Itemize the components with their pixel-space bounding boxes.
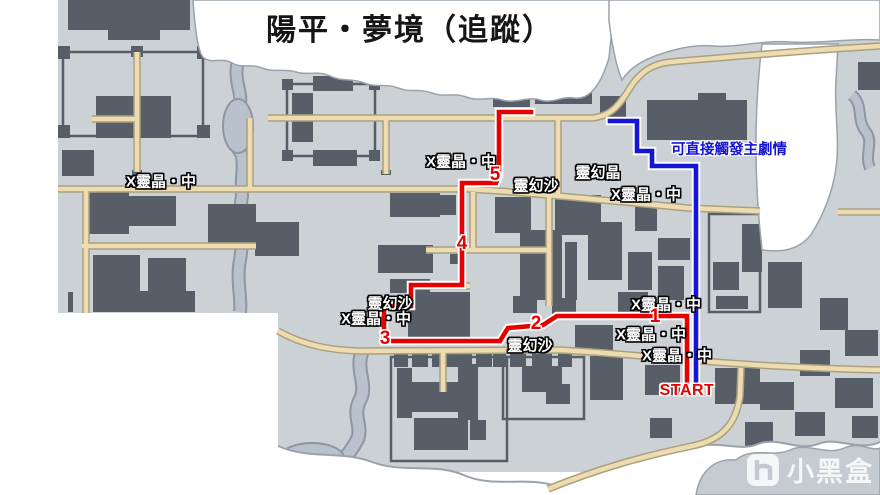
map-label-8: X靈晶・中 <box>631 294 701 315</box>
waypoint-start: START <box>660 382 715 400</box>
waypoint-5: 5 <box>490 164 501 186</box>
map-screenshot: 陽平・夢境（追蹤） 可直接觸發主劇情 小黑盒 X靈晶・中X靈晶・中靈幻沙靈幻晶X… <box>0 0 880 495</box>
map-label-6: X靈晶・中 <box>341 308 411 329</box>
map-label-4: X靈晶・中 <box>611 184 681 205</box>
watermark-text: 小黑盒 <box>787 450 874 489</box>
map-label-2: 靈幻沙 <box>513 175 558 196</box>
map-label-0: X靈晶・中 <box>126 171 196 192</box>
watermark: 小黑盒 <box>746 450 874 489</box>
map-label-10: X靈晶・中 <box>642 345 712 366</box>
waypoint-1: 1 <box>650 306 661 328</box>
waypoint-2: 2 <box>531 313 542 335</box>
map-label-3: 靈幻晶 <box>575 162 620 183</box>
blue-route-annotation: 可直接觸發主劇情 <box>671 138 787 159</box>
waypoint-4: 4 <box>457 233 468 255</box>
waypoint-3: 3 <box>380 328 391 350</box>
heybox-logo-icon <box>746 453 780 487</box>
page-title: 陽平・夢境（追蹤） <box>266 5 554 49</box>
map-label-7: 靈幻沙 <box>507 335 552 356</box>
map-label-1: X靈晶・中 <box>426 151 496 172</box>
label-overlay: 陽平・夢境（追蹤） 可直接觸發主劇情 小黑盒 X靈晶・中X靈晶・中靈幻沙靈幻晶X… <box>0 0 880 495</box>
